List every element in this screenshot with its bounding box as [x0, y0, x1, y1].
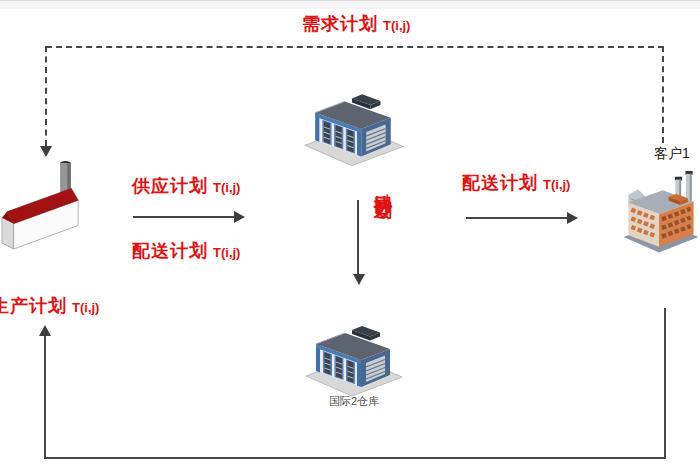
- production-plan-label: 生产计划T(i,j): [0, 294, 99, 318]
- supply-flow-line: [133, 216, 235, 218]
- delivery-plan-left-text: 配送计划: [132, 241, 208, 261]
- delivery-plan-right-label: 配送计划T(i,j): [462, 171, 570, 195]
- supply-flow-arrowhead-icon: [234, 211, 245, 223]
- production-flow-line-right: [664, 308, 666, 459]
- delivery-plan-left-label: 配送计划T(i,j): [132, 239, 240, 263]
- demand-flow-dashed-line-left: [45, 46, 47, 146]
- diagram-canvas: 需求计划T(i,j) 客户1 供应计划T(i,j) 配送计划T(i,j): [0, 0, 700, 470]
- production-plan-param: T(i,j): [72, 300, 99, 315]
- production-flow-line-left: [44, 334, 46, 458]
- warehouse-bottom-label: 国际2仓库: [304, 394, 404, 409]
- delivery-flow-arrowhead-icon: [567, 212, 578, 224]
- collaboration-plan-param: T(i,j): [376, 194, 390, 219]
- demand-flow-arrowhead-icon: [40, 146, 52, 157]
- production-flow-arrowhead-icon: [39, 325, 51, 336]
- supply-plan-text: 供应计划: [132, 176, 208, 196]
- supply-plan-param: T(i,j): [213, 180, 240, 195]
- collaboration-flow-arrowhead-icon: [353, 274, 365, 285]
- demand-plan-param: T(i,j): [383, 18, 410, 33]
- factory-icon: [0, 158, 84, 254]
- demand-plan-text: 需求计划: [302, 14, 378, 34]
- demand-plan-label: 需求计划T(i,j): [302, 12, 410, 36]
- customer-building-icon: [622, 170, 700, 262]
- production-plan-text: 生产计划: [0, 296, 67, 316]
- supply-plan-label: 供应计划T(i,j): [132, 174, 240, 198]
- collaboration-flow-line: [357, 200, 359, 276]
- customer-label: 客户1: [654, 145, 690, 163]
- delivery-flow-line: [466, 217, 568, 219]
- production-flow-line-bottom: [44, 457, 666, 459]
- collaboration-plan-text: 协同计划: [373, 180, 393, 188]
- bottom-edge-strip: [0, 0, 700, 9]
- demand-flow-dashed-line-right: [662, 46, 664, 143]
- collaboration-plan-label: 协同计划T(i,j): [371, 180, 395, 219]
- delivery-plan-right-param: T(i,j): [543, 177, 570, 192]
- warehouse-top-icon: [303, 84, 405, 172]
- delivery-plan-right-text: 配送计划: [462, 173, 538, 193]
- demand-flow-dashed-line-top: [46, 46, 664, 48]
- warehouse-bottom-icon: [304, 316, 404, 402]
- delivery-plan-left-param: T(i,j): [213, 245, 240, 260]
